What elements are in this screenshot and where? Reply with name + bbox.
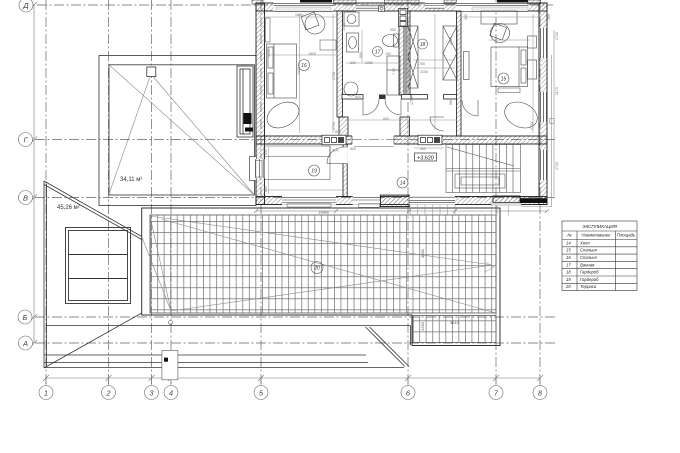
svg-text:860: 860 xyxy=(449,99,453,105)
svg-text:1260: 1260 xyxy=(420,321,425,331)
svg-text:14: 14 xyxy=(566,240,571,245)
svg-text:2730: 2730 xyxy=(555,32,559,40)
svg-text:Спальня: Спальня xyxy=(580,248,597,253)
svg-text:1795: 1795 xyxy=(410,97,414,105)
svg-text:18: 18 xyxy=(566,270,571,275)
svg-text:150: 150 xyxy=(385,52,391,56)
svg-text:1: 1 xyxy=(44,388,48,397)
svg-text:№: № xyxy=(567,233,572,238)
svg-text:1170: 1170 xyxy=(555,87,559,95)
svg-text:360: 360 xyxy=(464,14,468,20)
svg-text:Д: Д xyxy=(22,1,29,10)
svg-text:550: 550 xyxy=(390,28,396,32)
svg-text:2730: 2730 xyxy=(332,122,336,130)
svg-text:1050: 1050 xyxy=(342,23,346,31)
svg-text:600: 600 xyxy=(350,147,356,151)
svg-text:Холл: Холл xyxy=(579,240,590,245)
svg-text:400: 400 xyxy=(420,147,426,151)
svg-text:17: 17 xyxy=(566,262,571,267)
svg-text:1950: 1950 xyxy=(449,37,453,45)
svg-text:800: 800 xyxy=(335,130,341,134)
svg-text:Ванная: Ванная xyxy=(580,262,595,267)
svg-text:20: 20 xyxy=(313,266,320,272)
svg-text:2250: 2250 xyxy=(420,70,428,74)
svg-text:19: 19 xyxy=(311,169,317,175)
svg-text:1280: 1280 xyxy=(365,61,373,65)
svg-text:5250: 5250 xyxy=(267,49,271,57)
svg-text:4: 4 xyxy=(169,388,173,397)
svg-text:Б: Б xyxy=(23,313,28,322)
svg-text:600: 600 xyxy=(333,149,339,153)
svg-text:Гардероб: Гардероб xyxy=(580,270,599,275)
svg-text:2: 2 xyxy=(105,388,111,397)
svg-text:2300: 2300 xyxy=(297,67,301,75)
svg-text:А: А xyxy=(22,339,28,348)
svg-text:Наименование: Наименование xyxy=(582,233,612,238)
svg-text:20: 20 xyxy=(565,284,571,289)
svg-text:600: 600 xyxy=(264,149,268,155)
svg-text:18: 18 xyxy=(420,42,426,48)
svg-text:14: 14 xyxy=(400,181,406,187)
svg-text:Терраса: Терраса xyxy=(580,284,597,289)
svg-text:Гардероб: Гардероб xyxy=(580,277,599,282)
svg-text:17: 17 xyxy=(375,50,381,56)
svg-text:15: 15 xyxy=(501,77,507,83)
svg-text:1805: 1805 xyxy=(308,52,316,56)
svg-text:360: 360 xyxy=(547,14,551,20)
svg-text:Площадь: Площадь xyxy=(617,233,635,238)
svg-text:2730: 2730 xyxy=(332,72,336,80)
svg-text:Спальня: Спальня xyxy=(580,255,597,260)
svg-text:2730: 2730 xyxy=(530,122,534,130)
svg-text:800: 800 xyxy=(355,95,361,99)
svg-text:600: 600 xyxy=(383,117,389,121)
svg-text:500: 500 xyxy=(359,52,363,58)
svg-text:3610: 3610 xyxy=(450,320,460,325)
svg-text:В: В xyxy=(23,193,28,202)
svg-text:+3,620: +3,620 xyxy=(417,155,434,161)
svg-text:16: 16 xyxy=(566,255,571,260)
svg-text:16: 16 xyxy=(301,63,307,69)
svg-text:1760: 1760 xyxy=(417,62,425,66)
svg-text:600: 600 xyxy=(264,186,268,192)
svg-text:45,26 м²: 45,26 м² xyxy=(57,205,80,211)
svg-text:ЭКСПЛИКАЦИЯ: ЭКСПЛИКАЦИЯ xyxy=(582,224,617,229)
svg-text:4580: 4580 xyxy=(420,248,425,258)
svg-text:500: 500 xyxy=(350,61,356,65)
svg-text:34,11 м²: 34,11 м² xyxy=(120,177,142,183)
svg-text:15: 15 xyxy=(566,248,571,253)
svg-text:2730: 2730 xyxy=(555,162,559,170)
svg-text:7,00: 7,00 xyxy=(392,68,396,75)
svg-text:1880: 1880 xyxy=(295,13,303,17)
svg-text:19880: 19880 xyxy=(318,210,330,215)
svg-text:19: 19 xyxy=(566,277,571,282)
